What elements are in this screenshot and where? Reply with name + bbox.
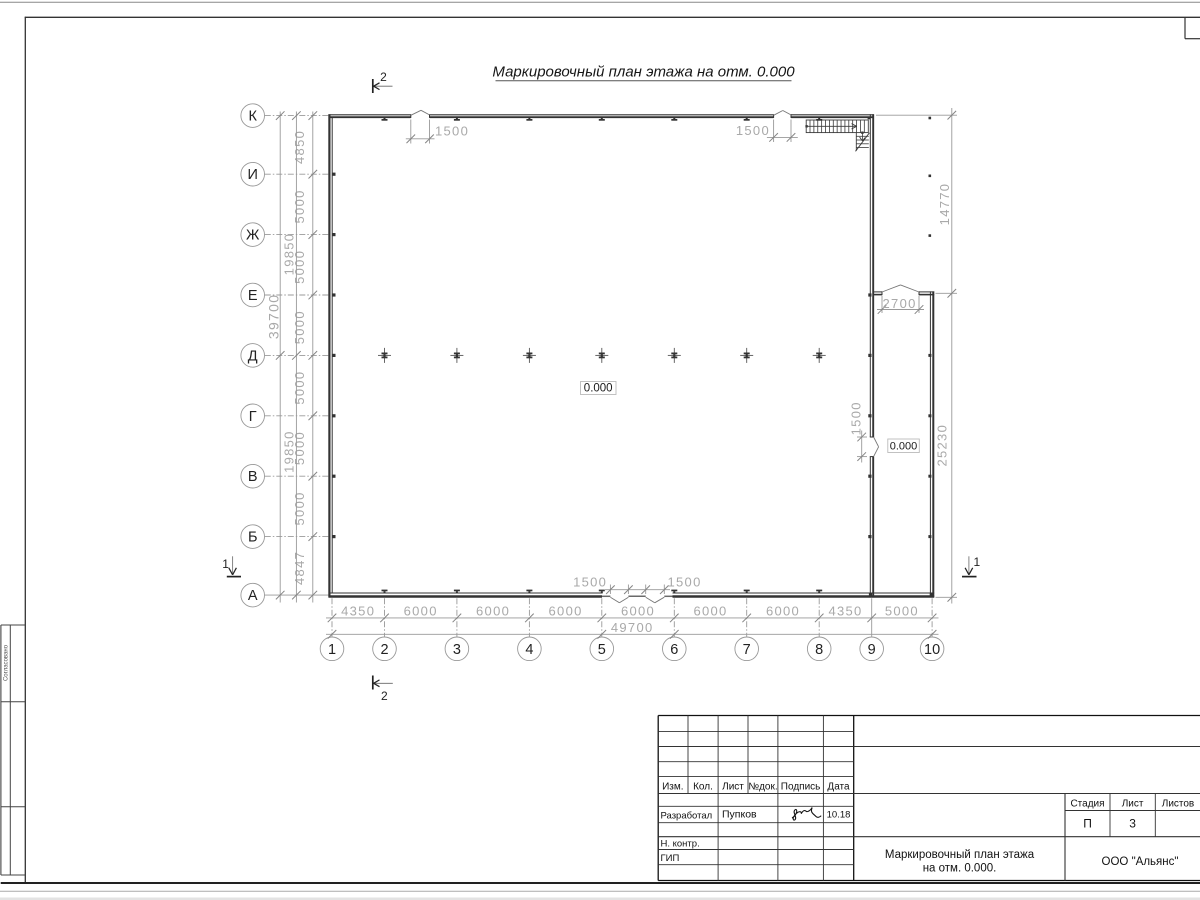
svg-text:Согласовано: Согласовано <box>4 644 10 681</box>
svg-text:6000: 6000 <box>621 604 655 619</box>
svg-text:14770: 14770 <box>937 183 952 226</box>
svg-text:4: 4 <box>525 642 533 658</box>
svg-text:0.000: 0.000 <box>584 383 613 395</box>
svg-text:№док.: №док. <box>748 781 777 792</box>
svg-text:Маркировочный план этажа на от: Маркировочный план этажа на отм. 0.000 <box>492 64 795 81</box>
svg-text:Пупков: Пупков <box>722 809 757 821</box>
svg-text:19850: 19850 <box>282 233 297 276</box>
svg-text:4350: 4350 <box>341 604 375 619</box>
svg-text:на отм. 0.000.: на отм. 0.000. <box>923 863 997 875</box>
svg-text:49700: 49700 <box>611 620 654 635</box>
svg-text:1500: 1500 <box>736 123 770 138</box>
svg-text:Лист: Лист <box>722 781 744 792</box>
svg-text:Лист: Лист <box>1122 799 1144 810</box>
svg-text:3: 3 <box>453 642 461 658</box>
svg-text:3: 3 <box>1129 817 1136 831</box>
svg-text:В: В <box>248 469 258 485</box>
svg-text:1500: 1500 <box>848 401 863 435</box>
svg-text:2: 2 <box>380 642 388 658</box>
svg-text:8: 8 <box>815 642 823 658</box>
svg-text:Маркировочный план этажа: Маркировочный план этажа <box>885 849 1035 861</box>
svg-text:Н. контр.: Н. контр. <box>661 839 700 850</box>
svg-text:4847: 4847 <box>292 551 307 585</box>
svg-text:Разработал: Разработал <box>661 811 713 822</box>
svg-text:1: 1 <box>328 642 336 658</box>
svg-text:Г: Г <box>249 409 257 425</box>
svg-text:Подпись: Подпись <box>781 781 821 792</box>
svg-text:2700: 2700 <box>883 296 917 311</box>
svg-text:2: 2 <box>380 70 387 84</box>
svg-text:0.000: 0.000 <box>890 440 918 452</box>
svg-text:ГИП: ГИП <box>661 853 680 864</box>
svg-text:2: 2 <box>381 689 388 703</box>
svg-text:5000: 5000 <box>292 310 307 344</box>
svg-text:К: К <box>248 109 257 125</box>
svg-text:19850: 19850 <box>282 430 297 473</box>
svg-text:Б: Б <box>248 530 258 546</box>
svg-text:П: П <box>1083 817 1092 831</box>
svg-text:Ж: Ж <box>246 228 260 244</box>
svg-text:1500: 1500 <box>435 123 469 138</box>
svg-text:И: И <box>247 167 257 183</box>
svg-text:Кол.: Кол. <box>693 781 713 792</box>
svg-text:Стадия: Стадия <box>1070 799 1104 810</box>
svg-text:А: А <box>248 588 258 604</box>
svg-text:6000: 6000 <box>476 604 510 619</box>
svg-text:1500: 1500 <box>668 575 702 590</box>
svg-text:6: 6 <box>670 642 678 658</box>
svg-text:5000: 5000 <box>292 491 307 525</box>
svg-text:9: 9 <box>868 642 876 658</box>
svg-text:5000: 5000 <box>885 604 919 619</box>
svg-text:5: 5 <box>598 642 606 658</box>
svg-text:6000: 6000 <box>404 604 438 619</box>
svg-text:1: 1 <box>973 555 980 569</box>
svg-text:25230: 25230 <box>934 424 949 467</box>
svg-text:Дата: Дата <box>827 781 850 792</box>
svg-text:7: 7 <box>743 642 751 658</box>
svg-text:Изм.: Изм. <box>662 781 683 792</box>
svg-text:6000: 6000 <box>549 604 583 619</box>
svg-text:4350: 4350 <box>828 604 862 619</box>
svg-text:6000: 6000 <box>693 604 727 619</box>
svg-text:6000: 6000 <box>766 604 800 619</box>
svg-text:Д: Д <box>248 348 258 364</box>
svg-text:ООО "Альянс": ООО "Альянс" <box>1102 856 1179 868</box>
svg-text:Листов: Листов <box>1162 799 1195 810</box>
svg-text:Е: Е <box>248 288 258 304</box>
svg-text:5000: 5000 <box>292 189 307 223</box>
svg-text:10.18: 10.18 <box>827 810 851 821</box>
svg-text:39700: 39700 <box>266 294 282 339</box>
svg-text:1: 1 <box>222 557 229 571</box>
svg-text:1500: 1500 <box>573 575 607 590</box>
svg-text:5000: 5000 <box>292 371 307 405</box>
svg-text:10: 10 <box>924 642 940 658</box>
svg-text:4850: 4850 <box>292 130 307 164</box>
